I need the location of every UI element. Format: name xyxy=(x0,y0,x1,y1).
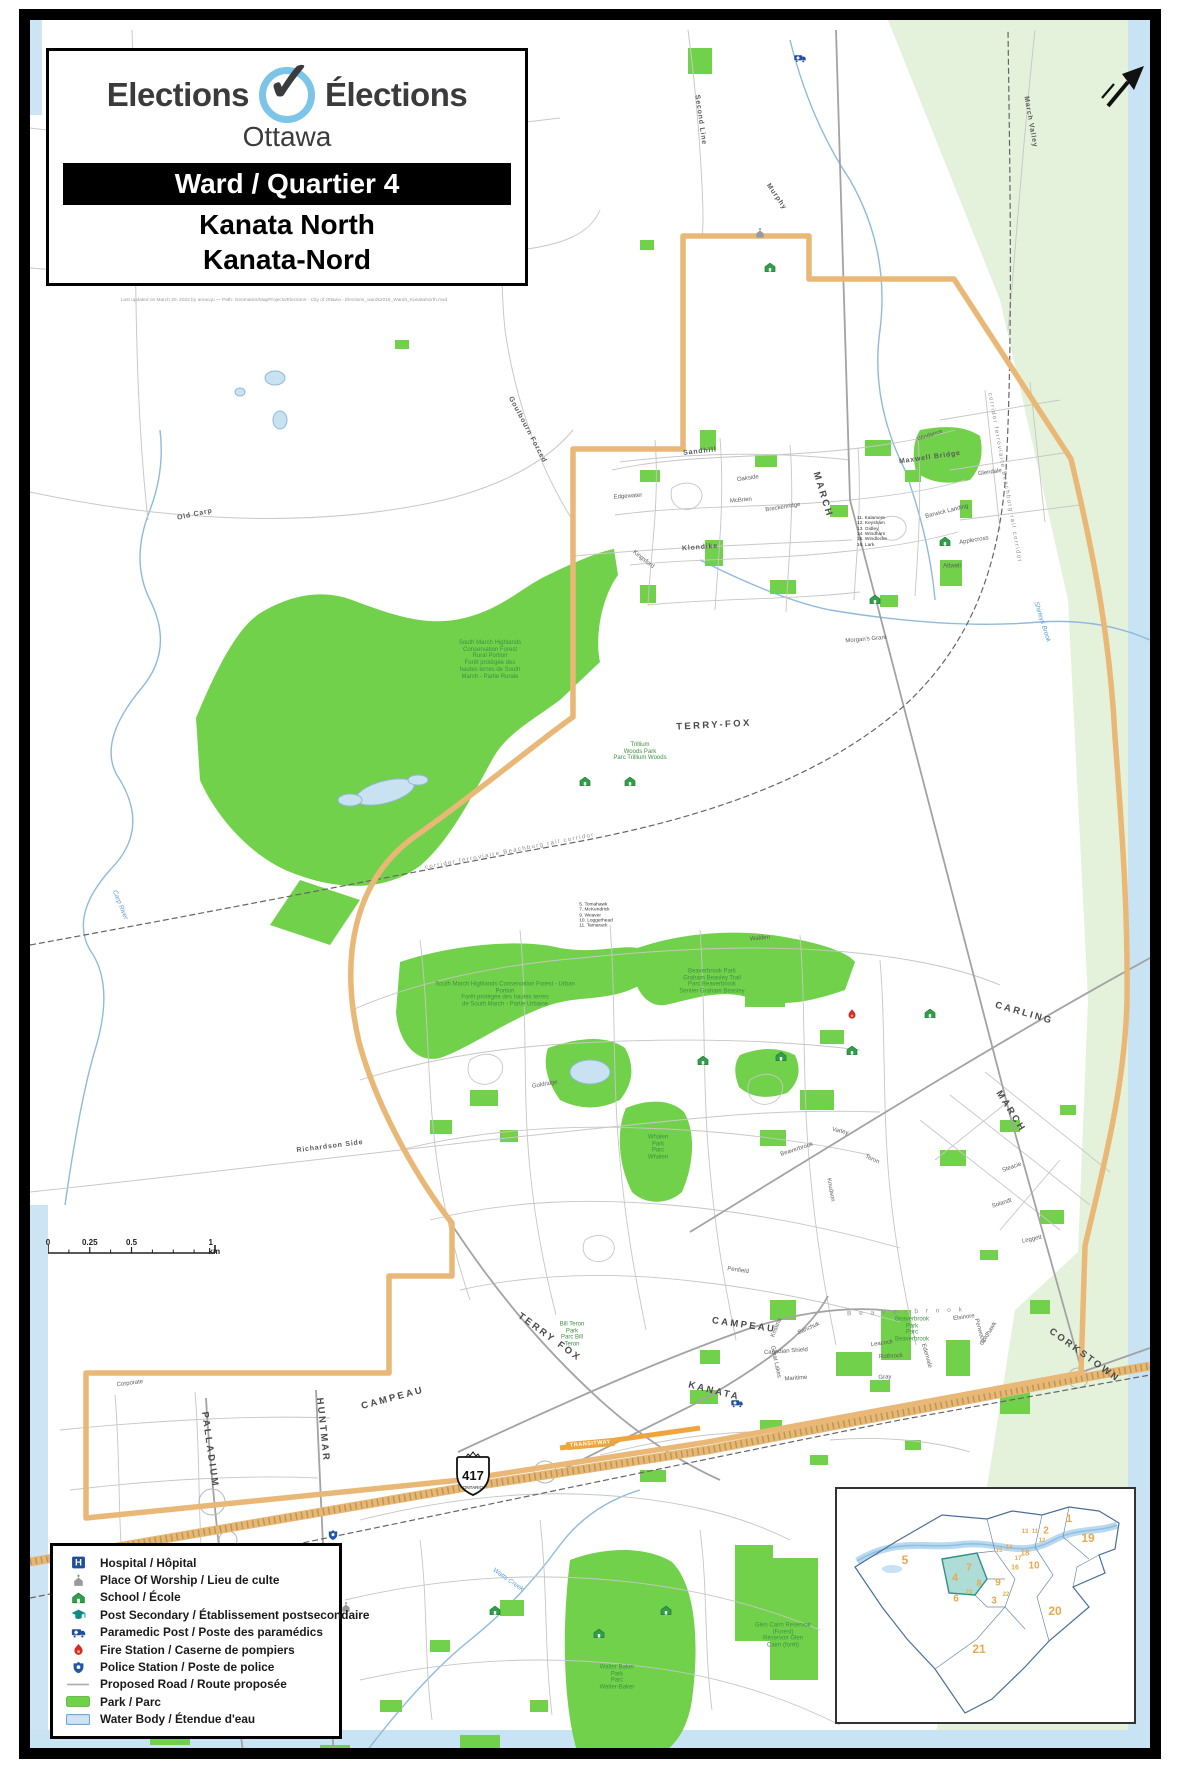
title-block: Elections ✓ Élections Ottawa Ward / Quar… xyxy=(46,48,528,286)
fire-icon xyxy=(65,1643,91,1656)
inset-ward-number-8: 8 xyxy=(976,1578,981,1588)
inset-ward-number-18: 18 xyxy=(1021,1549,1030,1558)
shield-number: 417 xyxy=(462,1468,484,1483)
inset-ward-number-15: 15 xyxy=(996,1548,1003,1554)
north-arrow-icon xyxy=(1094,56,1150,116)
worship-icon xyxy=(65,1574,91,1587)
scale-tick-label: 0 xyxy=(46,1238,50,1247)
legend-row: Park / Parc xyxy=(65,1693,339,1710)
svg-text:H: H xyxy=(75,1558,82,1569)
inset-ward-number-5: 5 xyxy=(902,1553,909,1567)
legend-row: Post Secondary / Établissement postsecon… xyxy=(65,1606,339,1623)
postsecondary-icon xyxy=(65,1608,91,1621)
map-caption: Last updated on March 30, 2022 by amacqu… xyxy=(46,298,522,303)
inset-ward-number-23: 23 xyxy=(966,1590,973,1596)
scale-tick-label: 0.25 xyxy=(82,1238,98,1247)
legend-label: Water Body / Étendue d'eau xyxy=(100,1712,255,1726)
inset-ward-number-20: 20 xyxy=(1048,1604,1061,1618)
ward-name-en: Kanata North xyxy=(49,207,525,242)
police-icon xyxy=(65,1661,91,1674)
ward-map-page: MARCHMARCHTERRY-FOXTERRY FOXCARLINGCAMPE… xyxy=(0,0,1180,1770)
hospital-icon: H xyxy=(65,1556,91,1569)
logo-city: Ottawa xyxy=(49,121,525,153)
inset-ward-number-21: 21 xyxy=(972,1642,985,1656)
legend-row: Place Of Worship / Lieu de culte xyxy=(65,1571,339,1588)
inset-ward-number-3: 3 xyxy=(991,1596,997,1607)
inset-ward-number-6: 6 xyxy=(953,1594,959,1605)
legend-label: Place Of Worship / Lieu de culte xyxy=(100,1573,279,1587)
legend-row: Water Body / Étendue d'eau xyxy=(65,1711,339,1728)
inset-ward-number-1: 1 xyxy=(1066,1513,1072,1525)
school-icon xyxy=(65,1591,91,1604)
paramedic-icon xyxy=(65,1626,91,1639)
inset-ward-number-7: 7 xyxy=(966,1563,972,1574)
inset-ward-number-17: 17 xyxy=(1015,1556,1022,1562)
ward-banner: Ward / Quartier 4 xyxy=(63,163,511,205)
proposed-road-icon xyxy=(65,1680,91,1689)
legend-row: Paramedic Post / Poste des paramédics xyxy=(65,1624,339,1641)
legend-row: Fire Station / Caserne de pompiers xyxy=(65,1641,339,1658)
inset-ward-number-16: 16 xyxy=(1011,1565,1019,1572)
inset-ward-number-11: 11 xyxy=(1032,1529,1038,1535)
inset-ward-number-14: 14 xyxy=(1006,1545,1013,1551)
inset-ward4-highlight xyxy=(942,1553,987,1595)
legend-label: Police Station / Poste de police xyxy=(100,1660,274,1674)
legend: HHospital / HôpitalPlace Of Worship / Li… xyxy=(50,1543,342,1739)
park-icon xyxy=(65,1696,91,1707)
inset-ward-number-12: 12 xyxy=(1039,1538,1046,1544)
inset-ward-number-19: 19 xyxy=(1081,1531,1094,1545)
legend-label: Proposed Road / Route proposée xyxy=(100,1677,287,1691)
inset-ward-number-10: 10 xyxy=(1028,1561,1039,1572)
water-icon xyxy=(65,1714,91,1725)
ward-name-fr: Kanata-Nord xyxy=(49,242,525,277)
inset-ward-number-9: 9 xyxy=(995,1578,1001,1589)
inset-ward-number-13: 13 xyxy=(1022,1529,1029,1535)
shield-province: ONTARIO xyxy=(463,1485,484,1490)
legend-label: School / École xyxy=(100,1590,181,1604)
legend-row: School / École xyxy=(65,1589,339,1606)
scale-bar: 00.250.51 km xyxy=(48,1238,228,1258)
logo-text-en: Elections xyxy=(107,76,249,114)
scale-tick-label: 1 km xyxy=(209,1238,222,1256)
legend-label: Hospital / Hôpital xyxy=(100,1556,196,1570)
legend-label: Park / Parc xyxy=(100,1695,161,1709)
inset-ward-number-4: 4 xyxy=(952,1572,958,1584)
elections-ottawa-logo: Elections ✓ Élections xyxy=(49,67,525,123)
scale-tick-label: 0.5 xyxy=(126,1238,137,1247)
legend-row: HHospital / Hôpital xyxy=(65,1554,339,1571)
legend-label: Paramedic Post / Poste des paramédics xyxy=(100,1625,323,1639)
legend-row: Proposed Road / Route proposée xyxy=(65,1676,339,1693)
inset-ward-number-2: 2 xyxy=(1043,1526,1049,1537)
inset-ward-number-22: 22 xyxy=(1003,1592,1010,1598)
legend-row: Police Station / Poste de police xyxy=(65,1658,339,1675)
legend-label: Fire Station / Caserne de pompiers xyxy=(100,1643,295,1657)
checkmark-logo-icon: ✓ xyxy=(259,67,315,123)
city-inset-map: 1219574891018161514131117122332262021 xyxy=(835,1487,1136,1724)
legend-label: Post Secondary / Établissement postsecon… xyxy=(100,1608,369,1622)
highway-417-shield: 417 ONTARIO xyxy=(453,1450,493,1503)
inset-canvas xyxy=(837,1489,1134,1722)
logo-text-fr: Élections xyxy=(325,76,467,114)
